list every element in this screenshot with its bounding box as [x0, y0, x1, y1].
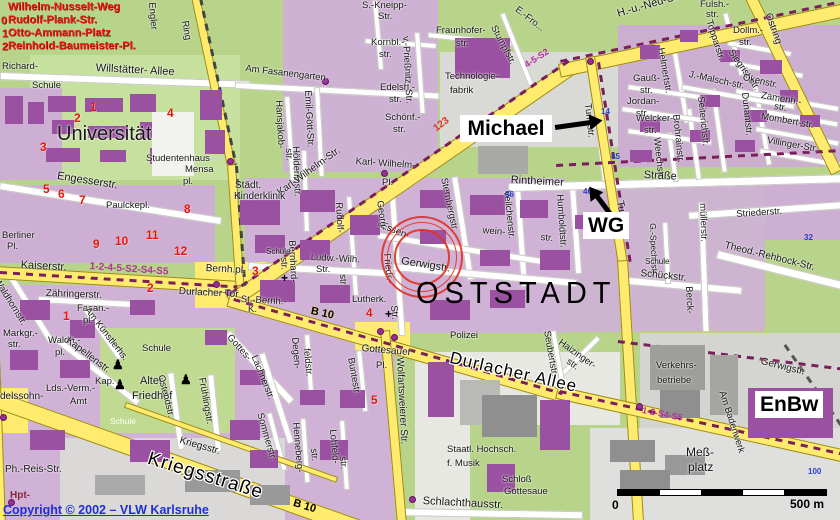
house-number: 32: [804, 234, 813, 242]
street-label: Berck-: [684, 286, 695, 314]
street-label: K.: [248, 305, 257, 315]
arrow-shaft: [555, 120, 592, 130]
poi-number-marker: 2: [147, 282, 154, 294]
building: [680, 30, 698, 42]
street-label: Lds.-Verm.-: [46, 384, 95, 394]
street-label: Schule: [110, 417, 136, 426]
street-label: Ph.-Reis-Str.: [5, 465, 62, 475]
building: [205, 330, 227, 345]
street-label: str.: [309, 448, 320, 461]
scale-segment: [701, 490, 743, 495]
copyright-link[interactable]: Copyright © 2002 – VLW Karlsruhe: [3, 503, 209, 517]
annotation-wg: WG: [583, 212, 629, 239]
building: [200, 90, 222, 120]
street-label: Schule: [645, 258, 669, 266]
street-label: G.-Specht-str.: [649, 223, 659, 276]
street-label: Hpt-: [10, 491, 30, 501]
street-label: Pl.: [7, 242, 18, 252]
building: [735, 140, 755, 152]
tram-stop-dot: [409, 496, 416, 503]
street-label: S.-Kneipp-: [362, 1, 407, 11]
street-label: str.: [456, 39, 469, 49]
scale-zero-label: 0: [612, 498, 619, 512]
street-label: platz: [688, 461, 713, 473]
building: [540, 400, 570, 450]
poi-symbol: ♟: [114, 378, 126, 391]
tram-stop-dot: [391, 334, 398, 341]
street-label: str.: [644, 126, 657, 136]
street-label: Meß-: [686, 446, 714, 458]
street-label: str.: [279, 257, 289, 270]
building: [300, 190, 335, 212]
street-label: Kap.: [95, 377, 115, 387]
street-label: E.-Fro...: [513, 5, 546, 34]
street-label: Zähringerstr.: [46, 289, 102, 301]
poi-number-marker: 3: [252, 265, 259, 277]
street-label: Str.: [316, 265, 330, 275]
street-label: Engler: [147, 2, 159, 30]
street-label: str.: [739, 38, 752, 48]
street-label: Ring: [180, 20, 193, 41]
building: [95, 475, 145, 495]
map-canvas[interactable]: Wilhelm-Nusselt-WegRudolf-Plank-Str.Otto…: [0, 0, 840, 520]
street-label: H.-u.-Neu-Str.: [616, 0, 684, 20]
street-label: delssohn-: [0, 392, 43, 402]
street-label: Straße: [643, 170, 677, 183]
house-number: 36: [505, 191, 514, 199]
building: [10, 350, 38, 370]
street-label: Universität: [57, 124, 151, 144]
building: [428, 362, 454, 417]
poi-number-marker: 2: [74, 112, 81, 124]
street-label: wein-: [482, 226, 505, 237]
scale-distance-label: 500 m: [790, 497, 824, 511]
street-label: Paulckepl.: [106, 201, 150, 211]
poi-number-marker: 5: [371, 394, 378, 406]
street-label: Schule: [266, 248, 290, 256]
scale-bar: [617, 489, 827, 496]
scale-segment: [660, 490, 702, 495]
street-label: Polizei: [450, 331, 478, 341]
poi-symbol: +: [281, 272, 288, 284]
building: [5, 96, 23, 124]
street-label: Amt: [70, 397, 87, 407]
building: [470, 195, 505, 215]
building: [300, 390, 325, 405]
poi-number-marker: 5: [43, 183, 50, 195]
street-label: Hansjakob-: [274, 100, 286, 148]
street-label: str.: [8, 340, 21, 350]
street-label: Welcker-: [636, 114, 673, 124]
poi-symbol: ♟: [180, 373, 192, 386]
legend-item: Rudolf-Plank-Str.: [8, 15, 97, 26]
building: [46, 148, 80, 162]
legend-item: 2: [2, 42, 8, 53]
street-label: betriebe: [657, 376, 691, 386]
building: [30, 430, 65, 450]
street-label: Städt.: [235, 181, 261, 191]
street-label: Lutherk.: [352, 295, 386, 305]
street-label: müllerstr.: [698, 203, 709, 242]
street-label: Str.: [378, 12, 392, 22]
street-label: feldstr.: [302, 348, 314, 377]
street-label: pl.: [55, 348, 65, 358]
house-number: 14: [601, 108, 610, 116]
building: [760, 60, 782, 74]
street-label: Kinderklinik: [234, 192, 285, 202]
scale-segment: [618, 490, 660, 495]
street-label: f. Musik: [447, 459, 480, 469]
poi-number-marker: 9: [93, 238, 100, 250]
legend-item: Reinhold-Baumeister-Pl.: [8, 41, 136, 52]
legend-item: 0: [1, 16, 7, 27]
building: [28, 102, 44, 124]
street-label: Schönf.-: [385, 113, 420, 123]
poi-number-marker: 4: [167, 107, 174, 119]
street-label: Mensa: [185, 165, 214, 175]
street-label: str.: [379, 50, 392, 60]
tram-stop-dot: [381, 170, 388, 177]
street-label: Pl.: [382, 178, 393, 188]
legend-item: 1: [2, 29, 8, 40]
building: [478, 146, 528, 174]
house-number: 100: [808, 468, 821, 476]
street-label: Rudolf-: [334, 202, 345, 233]
building: [240, 200, 280, 225]
building: [60, 360, 90, 378]
tram-stop-dot: [587, 58, 594, 65]
street-label: Fraunhofer-: [436, 26, 486, 36]
street-label: pl.: [183, 177, 193, 187]
street-label: Schloß: [502, 475, 532, 485]
street-label: str.: [338, 274, 348, 287]
building: [480, 250, 510, 266]
scale-segment: [784, 490, 826, 495]
poi-number-marker: 8: [184, 203, 191, 215]
street-label: Richard-: [2, 62, 38, 72]
tram-stop-dot: [377, 328, 384, 335]
street-label: str.: [393, 125, 406, 135]
building: [482, 395, 537, 437]
street-label: Bernh.pl.: [205, 264, 245, 276]
street-label: Markgr.-: [3, 329, 38, 339]
tram-stop-dot: [227, 158, 234, 165]
arrow-head: [589, 112, 604, 130]
building: [48, 96, 76, 112]
building: [630, 150, 652, 162]
street-label: fabrik: [450, 86, 473, 96]
building: [130, 94, 156, 112]
scale-segment: [743, 490, 785, 495]
street-label: v.-Prießnitz- Str.: [401, 36, 414, 104]
poi-number-marker: 12: [174, 245, 187, 257]
street-label: Berliner: [2, 231, 35, 241]
house-number: 45: [611, 153, 620, 161]
street-label: Staatl. Hochsch.: [447, 445, 516, 455]
poi-number-marker: 1: [63, 310, 70, 322]
annotation-enbw: EnBw: [755, 391, 823, 418]
poi-symbol: +: [385, 308, 392, 320]
legend-item: Otto-Ammann-Platz: [8, 28, 111, 39]
street-label: Verkehrs-: [656, 361, 697, 371]
building: [520, 200, 548, 218]
building: [320, 285, 350, 303]
street-label: str.: [389, 95, 402, 105]
street-label: str.: [773, 102, 787, 114]
poi-number-marker: 3: [40, 141, 47, 153]
building: [610, 440, 655, 462]
street-label: Studentenhaus: [146, 154, 210, 164]
street-label: Gottesaue: [504, 487, 548, 497]
annotation-michael: Michael: [460, 115, 552, 142]
building: [130, 300, 155, 315]
legend-item: Wilhelm-Nusselt-Weg: [8, 2, 120, 13]
poi-number-marker: 11: [146, 229, 159, 241]
street-label: Pl.: [376, 361, 387, 371]
street-label: Schule: [32, 81, 61, 91]
poi-symbol: ♟: [112, 358, 124, 371]
street-label: Jordan-: [627, 97, 659, 107]
poi-number-marker: 4: [366, 307, 373, 319]
street-label: str.: [540, 233, 553, 244]
poi-number-marker: 7: [79, 194, 86, 206]
building: [100, 150, 126, 162]
street-label: Technologie-: [445, 72, 499, 82]
street-label: str.: [338, 456, 349, 469]
building: [230, 420, 260, 440]
district-label-oststadt: OSTSTADT: [416, 277, 617, 311]
street-label: Emil-Gött-Str.: [303, 90, 315, 147]
street-label: Schule: [142, 344, 171, 354]
street-label: Kaiserstr.: [20, 260, 66, 273]
street-label: Degen-: [290, 337, 302, 369]
poi-number-marker: 1: [90, 101, 97, 113]
poi-number-marker: 6: [58, 188, 65, 200]
tram-stop-dot: [0, 414, 7, 421]
building: [205, 130, 225, 154]
street-label: Gauß-: [633, 74, 660, 84]
street-label: Dollm.-: [733, 26, 763, 36]
street-label: str.: [640, 86, 653, 96]
building: [540, 250, 570, 270]
poi-number-marker: 10: [115, 235, 128, 247]
